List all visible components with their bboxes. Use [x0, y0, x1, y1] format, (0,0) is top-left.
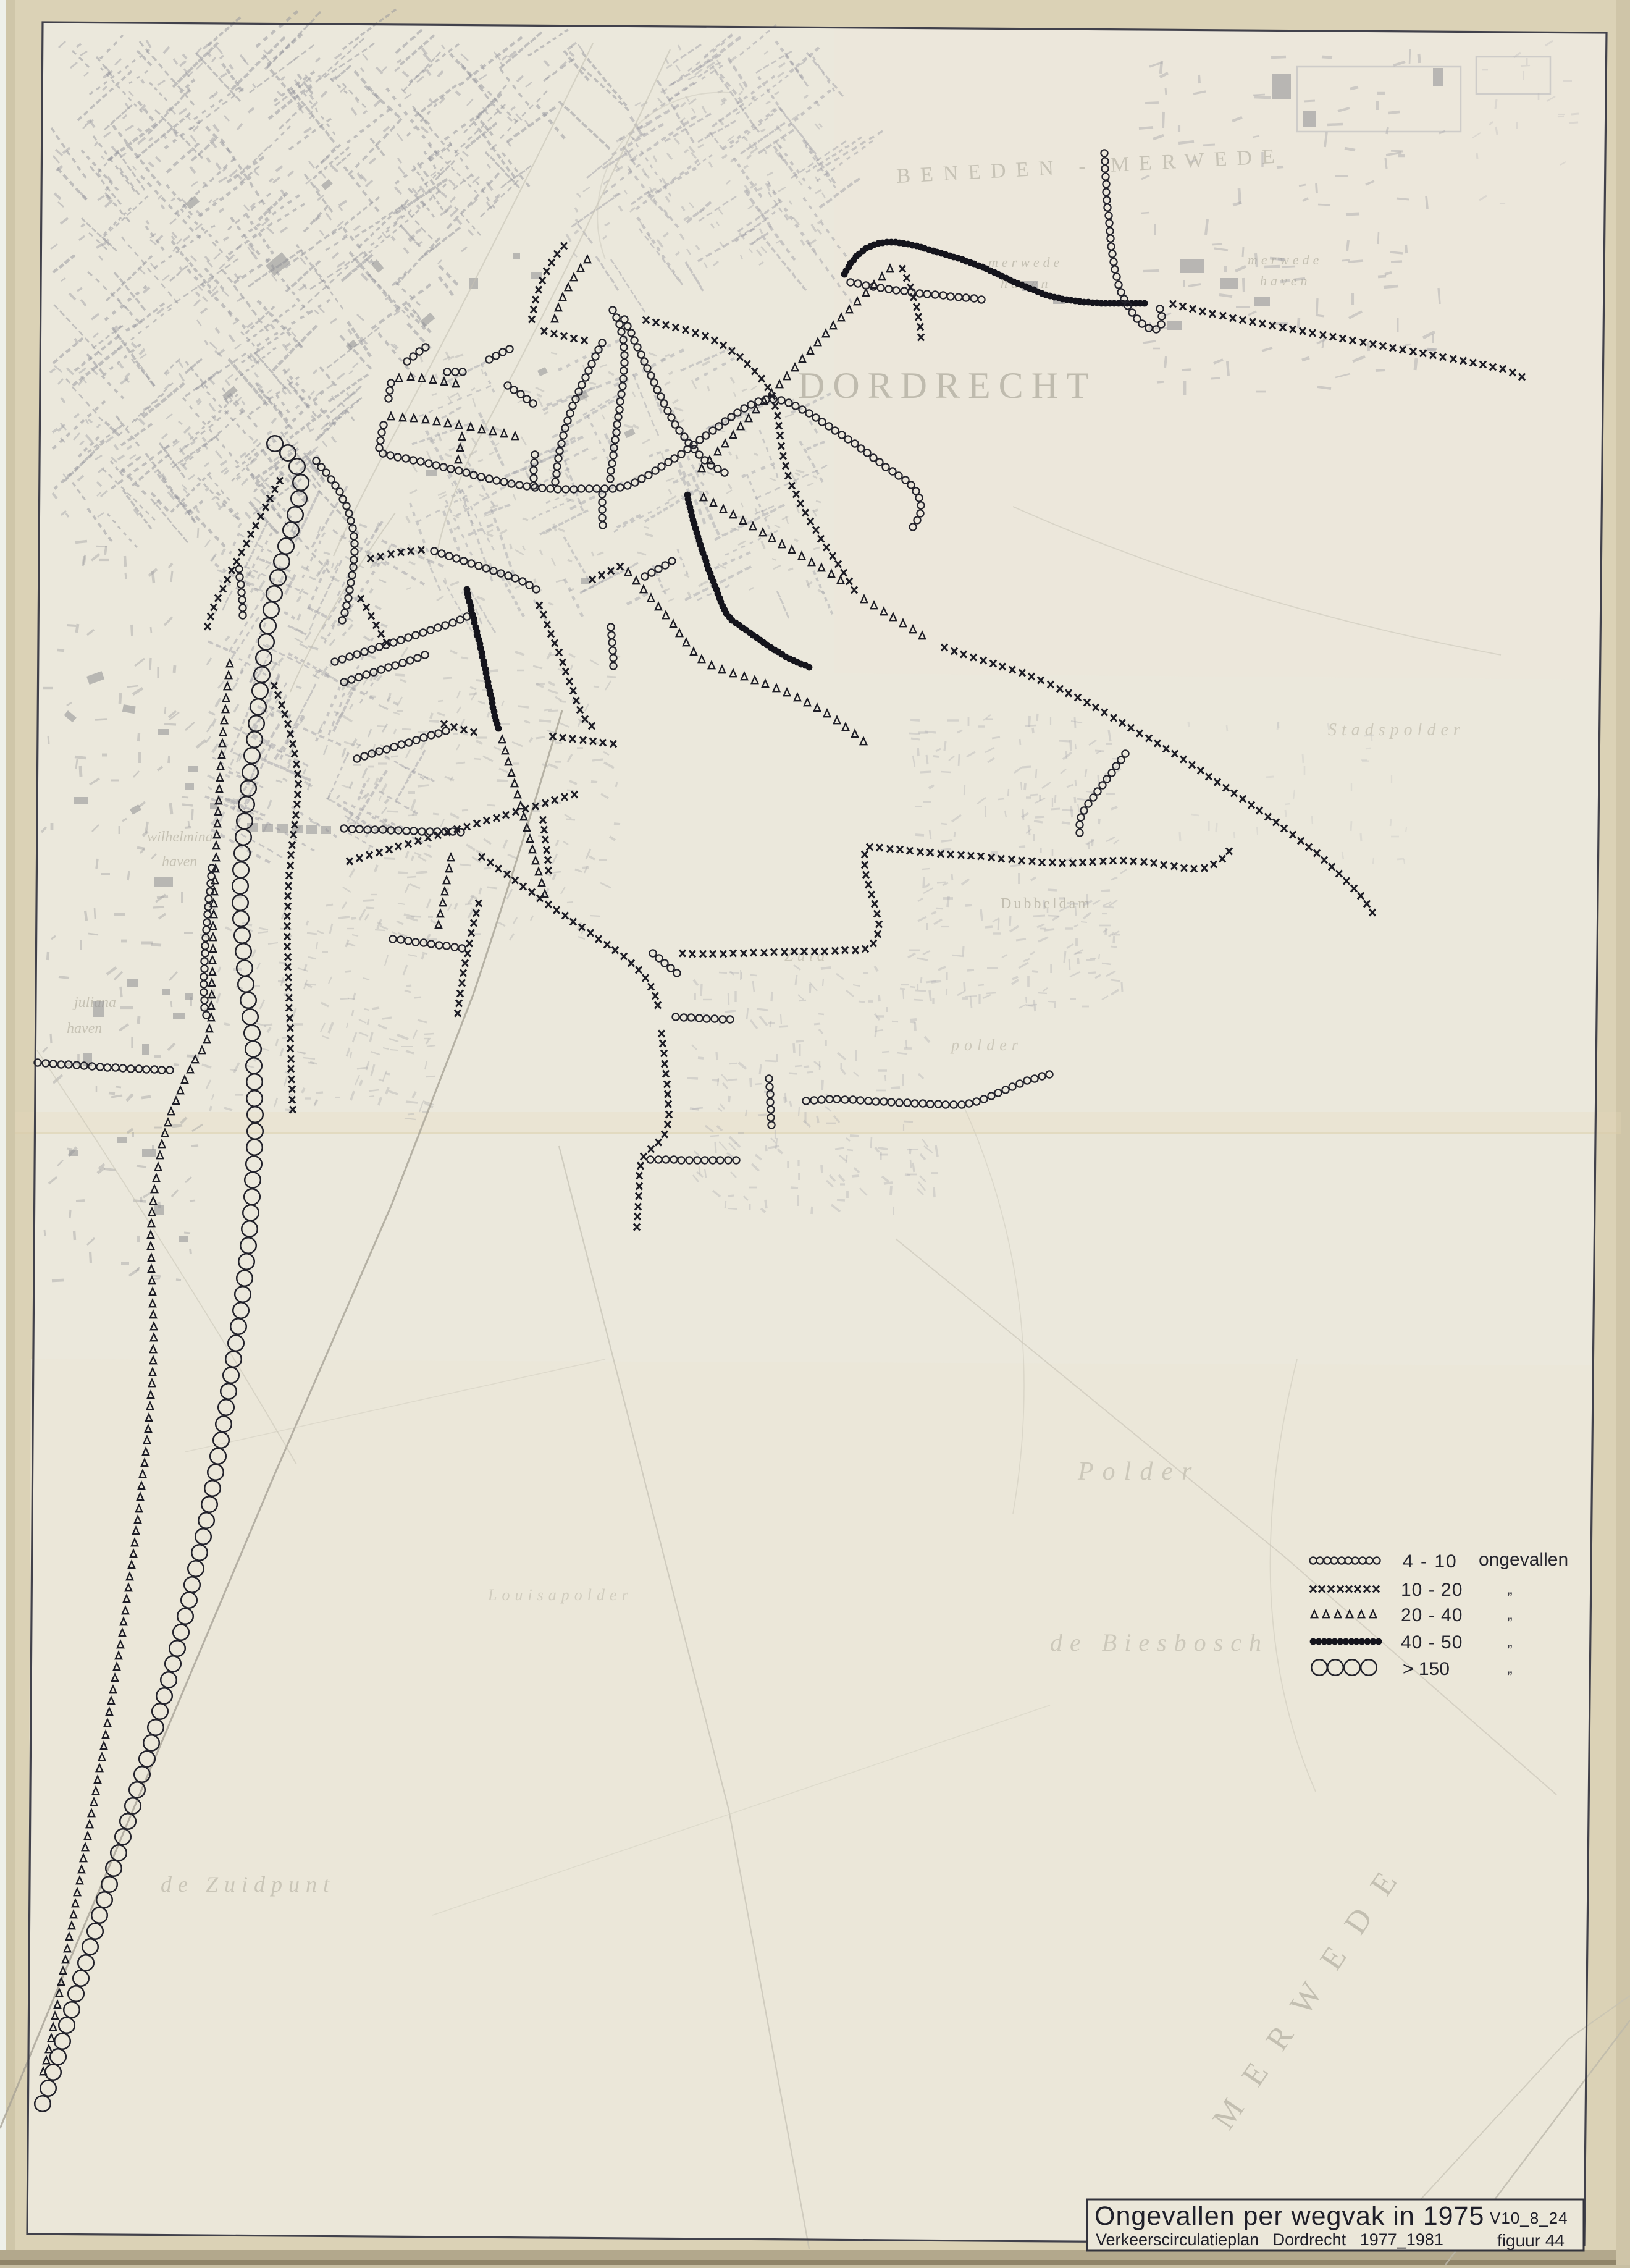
svg-text:polder: polder	[950, 1036, 1023, 1054]
svg-text:Polder: Polder	[1077, 1457, 1200, 1486]
svg-text:„: „	[1507, 1579, 1513, 1598]
svg-text:40 - 50: 40 - 50	[1401, 1632, 1463, 1653]
svg-text:de Zuidpunt: de Zuidpunt	[161, 1872, 335, 1897]
svg-text:haven: haven	[67, 1021, 102, 1037]
svg-text:V10_8_24: V10_8_24	[1490, 2209, 1568, 2227]
svg-text:DORDRECHT: DORDRECHT	[798, 365, 1097, 406]
svg-text:figuur 44: figuur 44	[1497, 2231, 1565, 2250]
svg-text:4 - 10: 4 - 10	[1403, 1551, 1458, 1572]
svg-text:wilhelmina: wilhelmina	[147, 829, 213, 845]
svg-text:Stadspolder: Stadspolder	[1328, 720, 1465, 740]
svg-text:merwede: merwede	[988, 255, 1063, 270]
svg-text:Verkeerscirculatieplan Dordr: Verkeerscirculatieplan Dordrecht 1977_19…	[1096, 2230, 1443, 2249]
svg-text:> 150: > 150	[1403, 1659, 1450, 1679]
svg-text:haven: haven	[162, 854, 197, 870]
svg-text:ongevallen: ongevallen	[1479, 1549, 1568, 1570]
svg-text:„: „	[1507, 1658, 1513, 1677]
svg-text:Ongevallen per wegvak in 1975: Ongevallen per wegvak in 1975	[1094, 2201, 1484, 2231]
svg-text:„: „	[1507, 1632, 1513, 1650]
svg-text:20 - 40: 20 - 40	[1401, 1605, 1463, 1625]
svg-text:„: „	[1507, 1604, 1513, 1623]
svg-text:Louisapolder: Louisapolder	[487, 1586, 633, 1604]
svg-text:de Biesbosch: de Biesbosch	[1050, 1629, 1269, 1656]
svg-text:10 - 20: 10 - 20	[1401, 1580, 1463, 1600]
